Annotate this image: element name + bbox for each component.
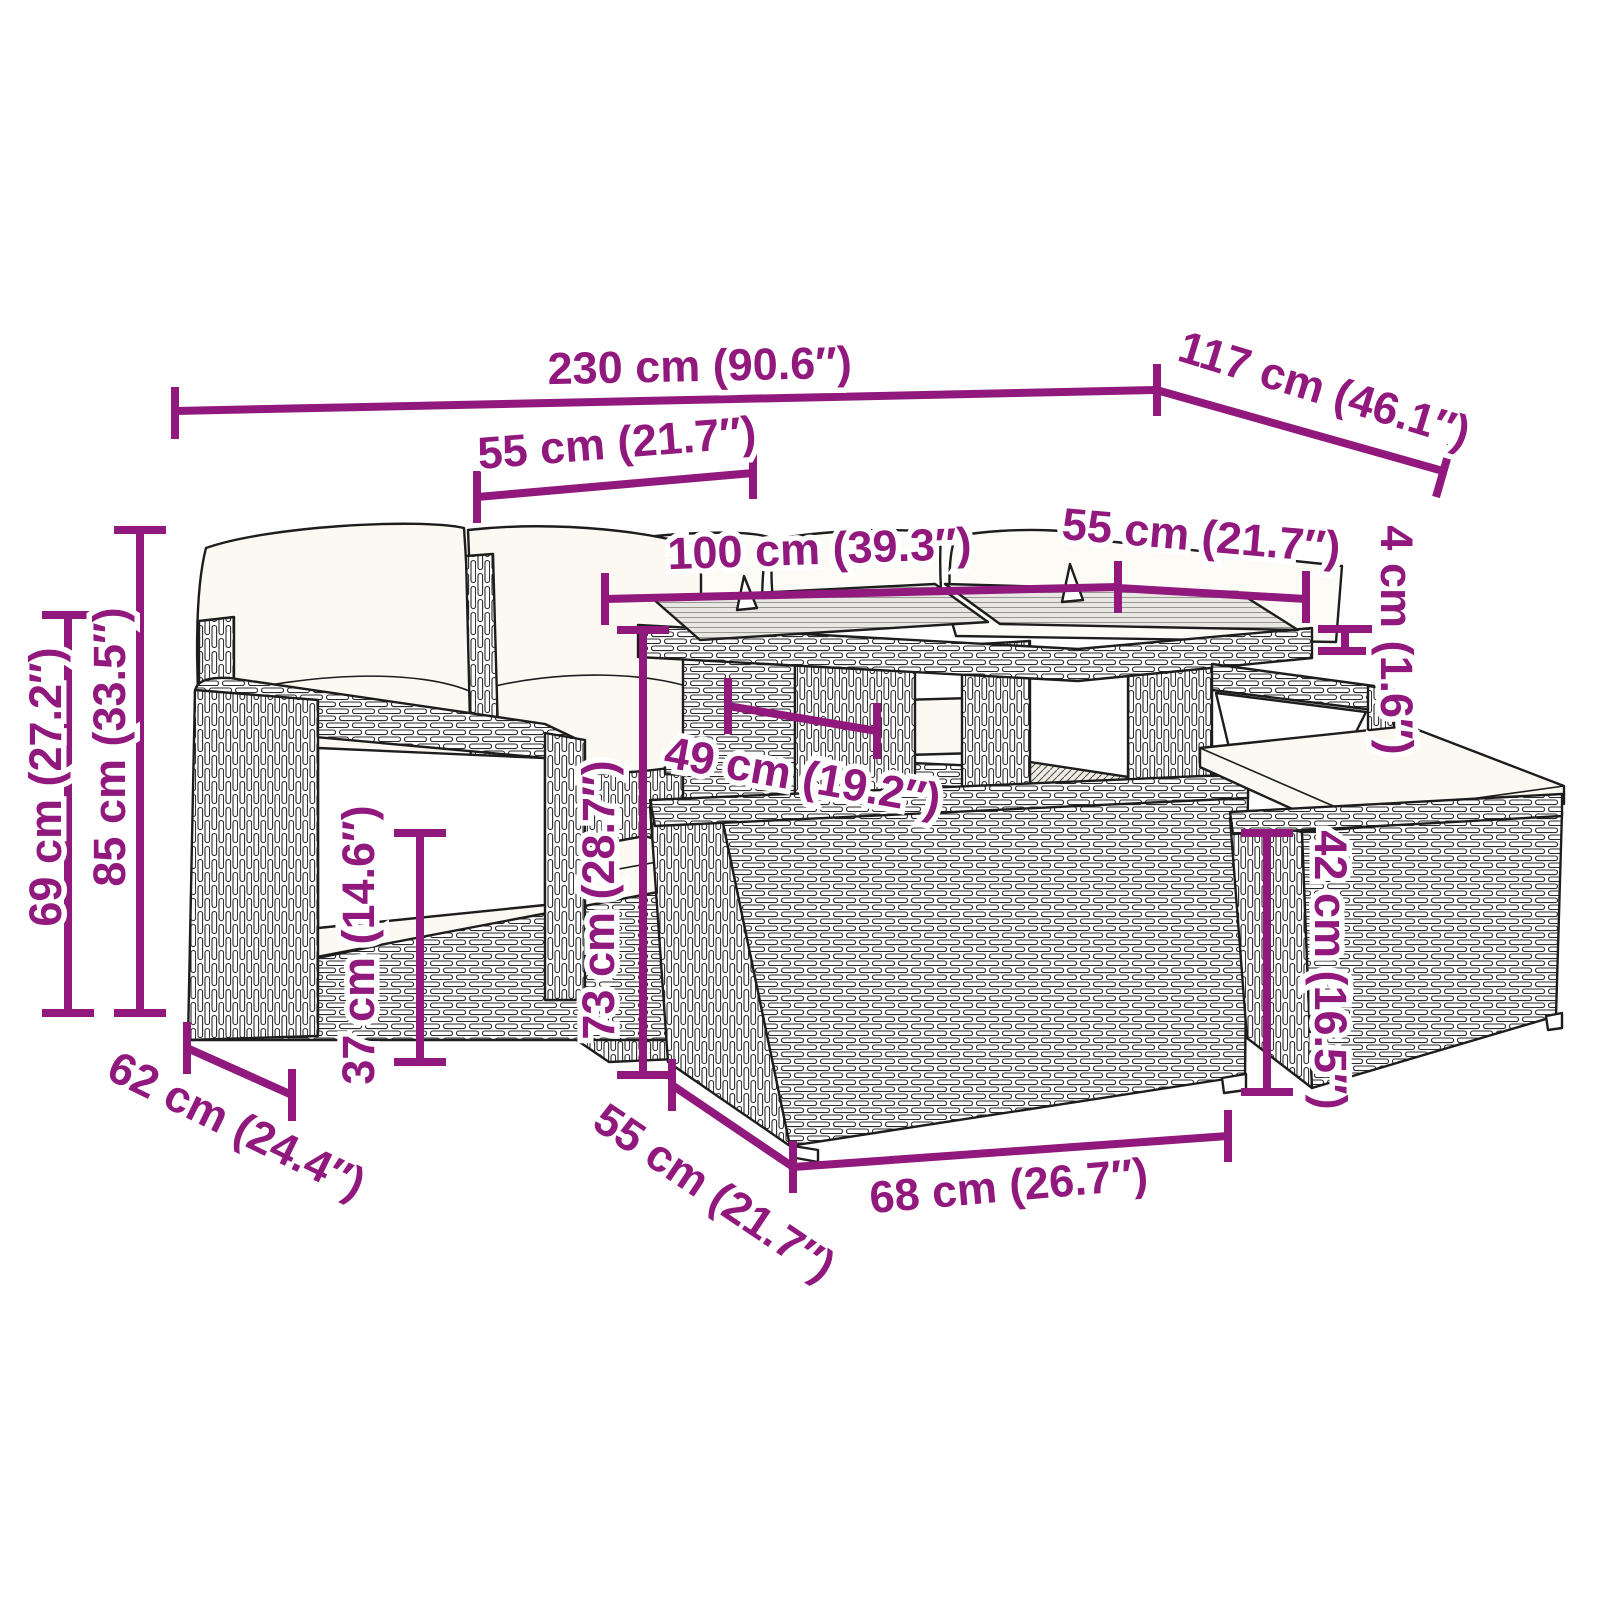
furniture-art [188, 524, 1564, 1162]
armrest-panel [188, 690, 318, 1040]
dim-label-seat-height: 37 cm (14.6″) [333, 805, 384, 1084]
dim-label-arm-height: 69 cm (27.2″) [20, 647, 71, 926]
front-ottoman-front-face [722, 790, 1248, 1146]
dim-label-total-width: 230 cm (90.6″) [547, 337, 852, 394]
dim-label-seat-width: 55 cm (21.7″) [476, 406, 758, 479]
furniture-dimension-diagram: 230 cm (90.6″) 117 cm (46.1″) 55 cm (21.… [0, 0, 1600, 1600]
front-ottoman [650, 774, 1248, 1162]
dim-label-glass-thickness: 4 cm (1.6″) [1371, 525, 1422, 754]
dim-label-ottoman-height: 42 cm (16.5″) [1305, 830, 1356, 1109]
dim-label-table-width: 100 cm (39.3″) [667, 518, 973, 580]
dim-label-back-height: 85 cm (33.5″) [84, 607, 135, 886]
diagram-canvas: 230 cm (90.6″) 117 cm (46.1″) 55 cm (21.… [0, 0, 1600, 1600]
dim-label-table-height: 73 cm (28.7″) [573, 760, 624, 1039]
